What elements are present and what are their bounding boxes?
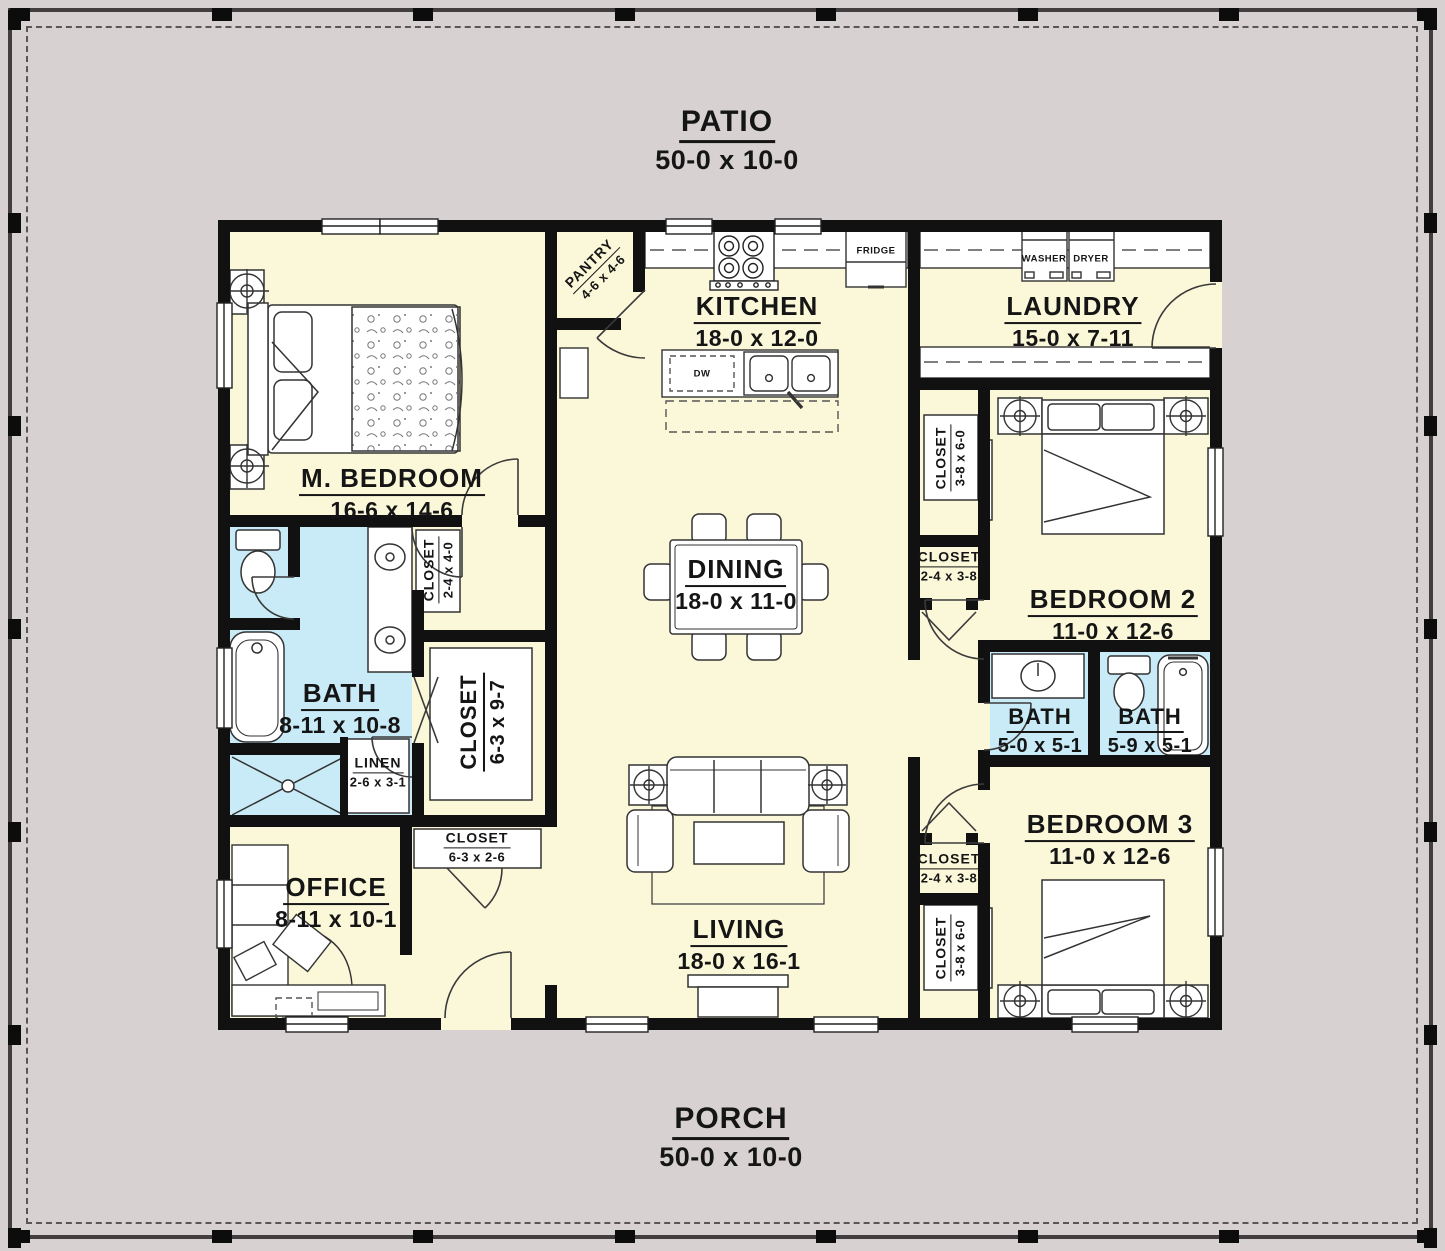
room-name: BATH <box>1006 705 1073 733</box>
room-label-kitchen: KITCHEN 18-0 x 12-0 <box>694 292 821 352</box>
room-name: PORCH <box>672 1102 789 1140</box>
room-name: LINEN <box>352 755 403 773</box>
window <box>286 1017 348 1032</box>
window <box>217 880 232 948</box>
room-dims: 2-4 x 4-0 <box>441 537 456 604</box>
room-dims: 16-6 x 14-6 <box>299 498 485 524</box>
room-label-closet-2440: CLOSET 2-4 x 4-0 <box>420 537 455 604</box>
window <box>1208 448 1223 536</box>
room-label-bath2: BATH 5-0 x 5-1 <box>998 705 1083 757</box>
room-name: CLOSET <box>421 537 439 604</box>
room-dims: 5-0 x 5-1 <box>998 735 1083 757</box>
room-dims: 50-0 x 10-0 <box>659 1142 803 1172</box>
room-name: CLOSET <box>916 851 983 869</box>
room-name: LAUNDRY <box>1004 292 1141 324</box>
room-name: BEDROOM 2 <box>1028 585 1198 617</box>
floor-plan-page: PATIO 50-0 x 10-0 PORCH 50-0 x 10-0 M. B… <box>0 0 1445 1251</box>
window <box>586 1017 648 1032</box>
room-name: CLOSET <box>444 830 511 848</box>
window <box>322 219 380 234</box>
room-dims: 50-0 x 10-0 <box>655 145 799 175</box>
room-name: CLOSET <box>933 915 951 982</box>
room-name: LIVING <box>691 915 788 947</box>
room-dims: 15-0 x 7-11 <box>1004 326 1141 352</box>
room-label-porch: PORCH 50-0 x 10-0 <box>659 1102 803 1172</box>
room-label-closet-2438-top: CLOSET 2-4 x 3-8 <box>916 548 983 583</box>
fridge-label: FRIDGE <box>857 246 896 257</box>
room-label-office: OFFICE 8-11 x 10-1 <box>275 873 397 933</box>
room-name: BEDROOM 3 <box>1025 810 1195 842</box>
window <box>380 219 438 234</box>
room-label-closet-3860-bottom: CLOSET 3-8 x 6-0 <box>932 915 967 982</box>
room-label-master-closet: CLOSET 6-3 x 9-7 <box>457 672 509 771</box>
room-label-patio: PATIO 50-0 x 10-0 <box>655 105 799 175</box>
window <box>217 648 232 728</box>
room-label-laundry: LAUNDRY 15-0 x 7-11 <box>1004 292 1141 352</box>
room-dims: 8-11 x 10-8 <box>279 713 401 739</box>
room-label-master-bath: BATH 8-11 x 10-8 <box>279 679 401 739</box>
room-name: CLOSET <box>457 672 485 771</box>
room-label-living: LIVING 18-0 x 16-1 <box>677 915 800 975</box>
room-dims: 11-0 x 12-6 <box>1028 619 1198 645</box>
window <box>1072 1017 1138 1032</box>
room-dims: 18-0 x 16-1 <box>677 949 800 975</box>
window <box>666 219 712 234</box>
room-label-dining: DINING 18-0 x 11-0 <box>675 555 797 615</box>
fridge <box>846 231 906 287</box>
room-label-bedroom2: BEDROOM 2 11-0 x 12-6 <box>1028 585 1198 645</box>
room-dims: 18-0 x 11-0 <box>675 589 797 615</box>
room-name: CLOSET <box>933 425 951 492</box>
room-name: OFFICE <box>283 873 388 905</box>
room-dims: 6-3 x 9-7 <box>487 672 509 771</box>
room-dims: 3-8 x 6-0 <box>953 915 968 982</box>
window <box>814 1017 878 1032</box>
window <box>217 303 232 388</box>
room-dims: 2-6 x 3-1 <box>350 775 407 790</box>
room-dims: 18-0 x 12-0 <box>694 326 821 352</box>
room-label-linen: LINEN 2-6 x 3-1 <box>350 754 407 789</box>
room-name: BATH <box>1116 705 1183 733</box>
room-dims: 11-0 x 12-6 <box>1025 844 1195 870</box>
room-dims: 3-8 x 6-0 <box>953 425 968 492</box>
room-name: CLOSET <box>916 549 983 567</box>
room-dims: 2-4 x 3-8 <box>916 871 983 886</box>
room-dims: 5-9 x 5-1 <box>1108 735 1193 757</box>
room-name: KITCHEN <box>694 292 821 324</box>
room-name: M. BEDROOM <box>299 464 485 496</box>
room-label-closet-2438-bottom: CLOSET 2-4 x 3-8 <box>916 850 983 885</box>
washer-label: WASHER <box>1022 254 1067 265</box>
room-name: BATH <box>301 679 379 711</box>
room-dims: 6-3 x 2-6 <box>444 850 511 865</box>
stove <box>710 231 778 290</box>
room-label-bedroom3: BEDROOM 3 11-0 x 12-6 <box>1025 810 1195 870</box>
dishwasher-label: DW <box>694 369 711 380</box>
room-name: DINING <box>686 555 787 587</box>
room-name: PATIO <box>679 105 775 143</box>
floor-plan-drawing <box>0 0 1445 1251</box>
room-label-closet-6326: CLOSET 6-3 x 2-6 <box>444 829 511 864</box>
room-label-master-bedroom: M. BEDROOM 16-6 x 14-6 <box>299 464 485 524</box>
room-label-bath3: BATH 5-9 x 5-1 <box>1108 705 1193 757</box>
window <box>775 219 821 234</box>
dryer-label: DRYER <box>1073 254 1108 265</box>
room-label-closet-3860-top: CLOSET 3-8 x 6-0 <box>932 425 967 492</box>
room-dims: 2-4 x 3-8 <box>916 569 983 584</box>
window <box>1208 848 1223 936</box>
room-dims: 8-11 x 10-1 <box>275 907 397 933</box>
